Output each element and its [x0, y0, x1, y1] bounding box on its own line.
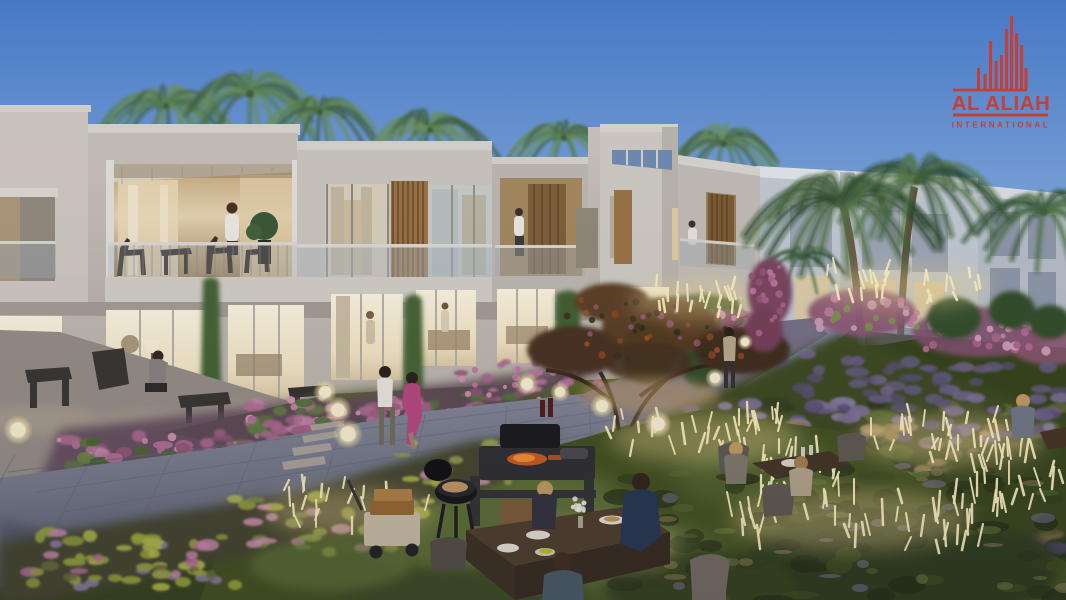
svg-text:AL ALIAH: AL ALIAH — [952, 92, 1051, 115]
svg-text:INTERNATIONAL: INTERNATIONAL — [952, 121, 1051, 130]
